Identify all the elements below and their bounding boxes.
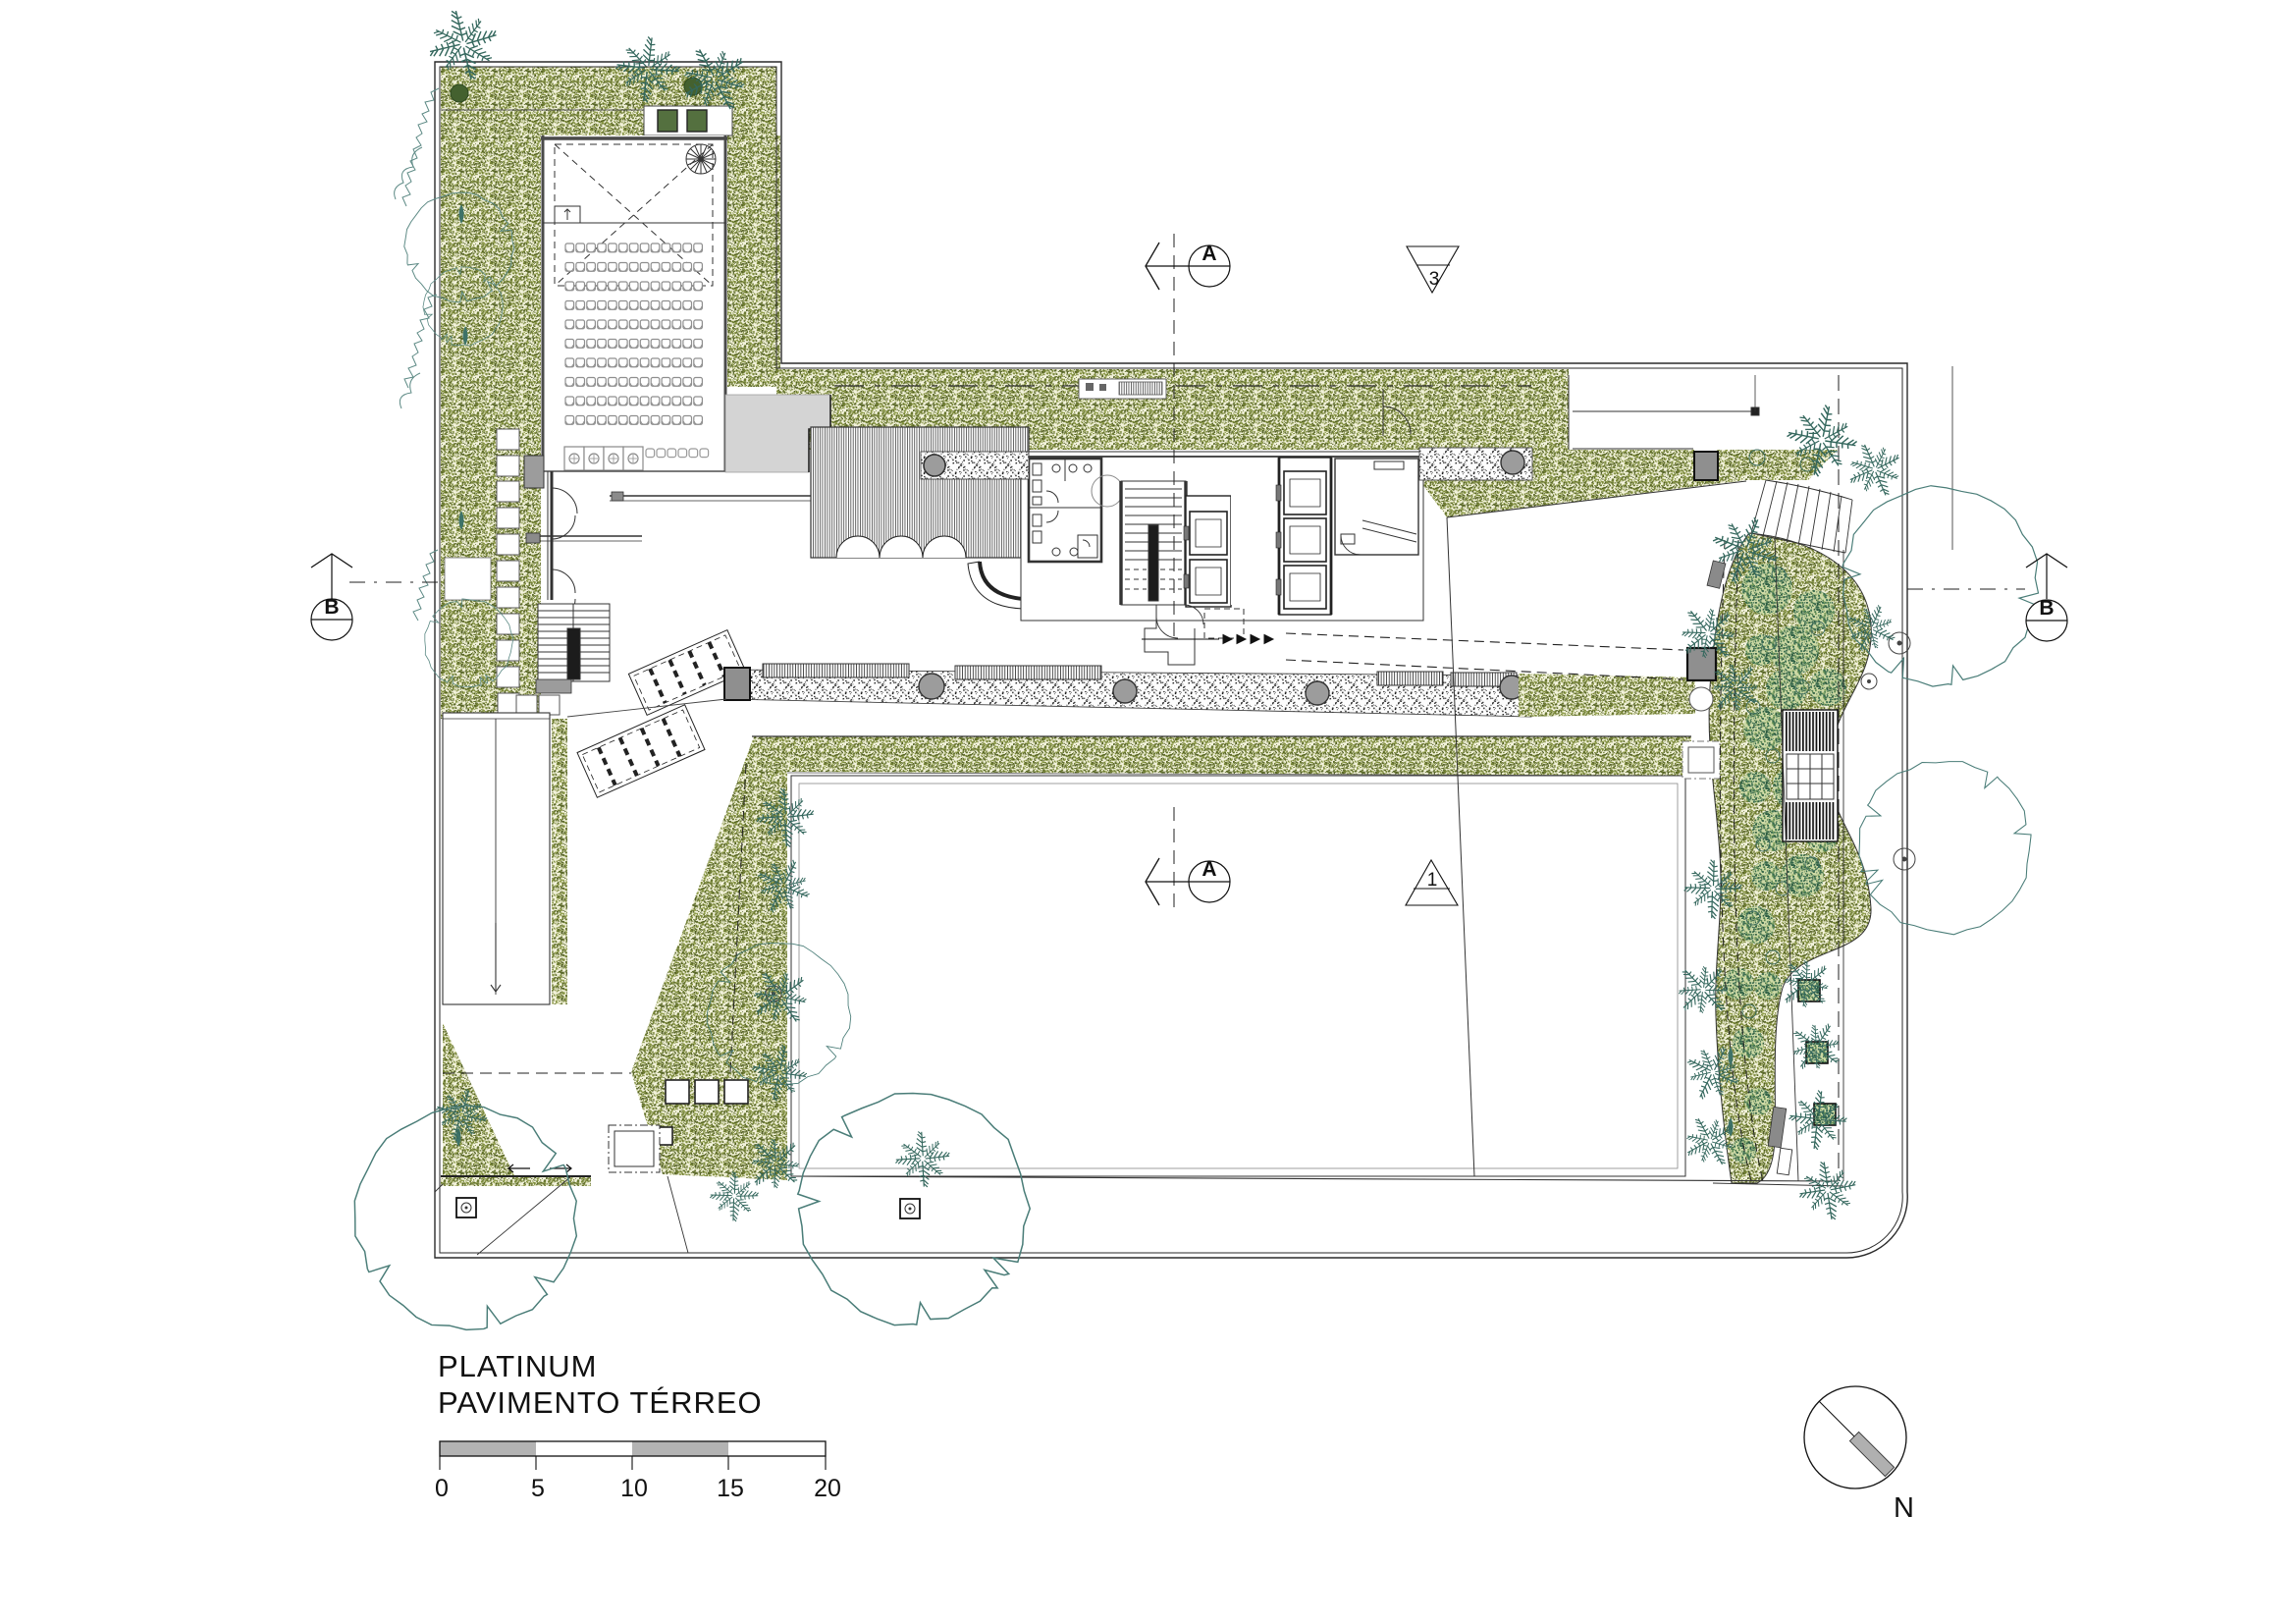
svg-text:1: 1	[1427, 870, 1438, 891]
svg-text:B: B	[2039, 597, 2054, 620]
svg-text:A: A	[1201, 243, 1216, 265]
svg-text:0: 0	[435, 1475, 449, 1502]
svg-text:PLATINUM: PLATINUM	[438, 1349, 597, 1383]
svg-text:PAVIMENTO TÉRREO: PAVIMENTO TÉRREO	[438, 1385, 763, 1420]
svg-text:3: 3	[1429, 269, 1440, 290]
svg-text:15: 15	[717, 1475, 744, 1502]
svg-text:N: N	[1894, 1492, 1914, 1524]
svg-text:5: 5	[531, 1475, 545, 1502]
svg-text:20: 20	[814, 1475, 841, 1502]
svg-text:B: B	[324, 596, 339, 619]
svg-text:10: 10	[620, 1475, 648, 1502]
svg-text:A: A	[1201, 858, 1216, 881]
